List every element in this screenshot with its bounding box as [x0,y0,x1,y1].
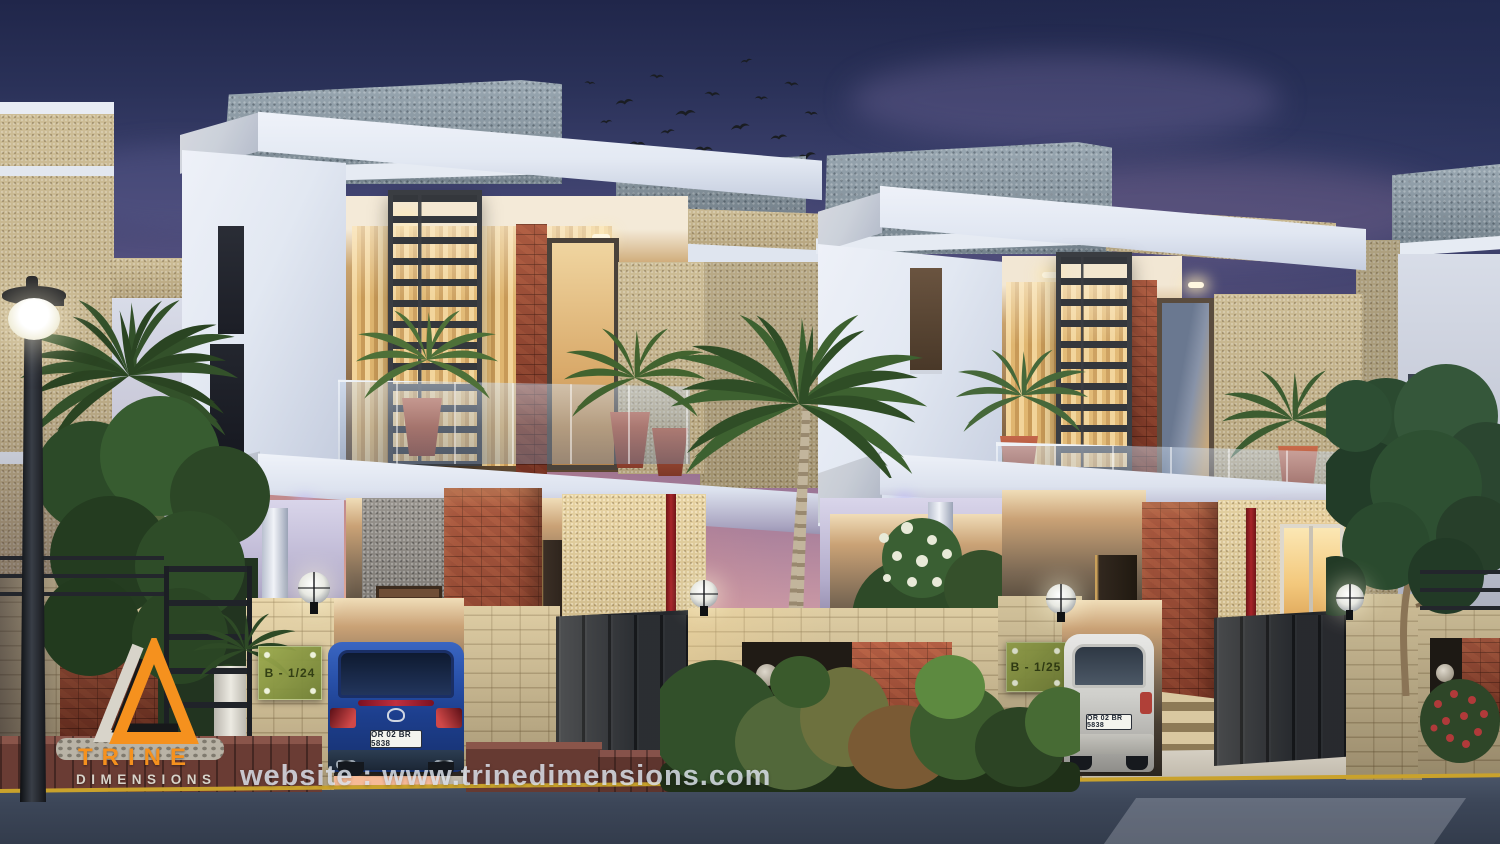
trine-triangle-logo-icon [92,638,204,748]
website-watermark: website : www.trinedimensions.com [240,760,771,793]
street-lamp-icon [0,0,1500,844]
logo-wordmark-primary: TRINE [78,744,195,772]
street-lamp-globe [8,298,60,340]
architectural-render-scene: B - 1/24 B - 1/25 OR [0,0,1500,844]
logo-wordmark-secondary: DIMENSIONS [76,772,217,787]
street-lamp-pole [20,292,46,802]
